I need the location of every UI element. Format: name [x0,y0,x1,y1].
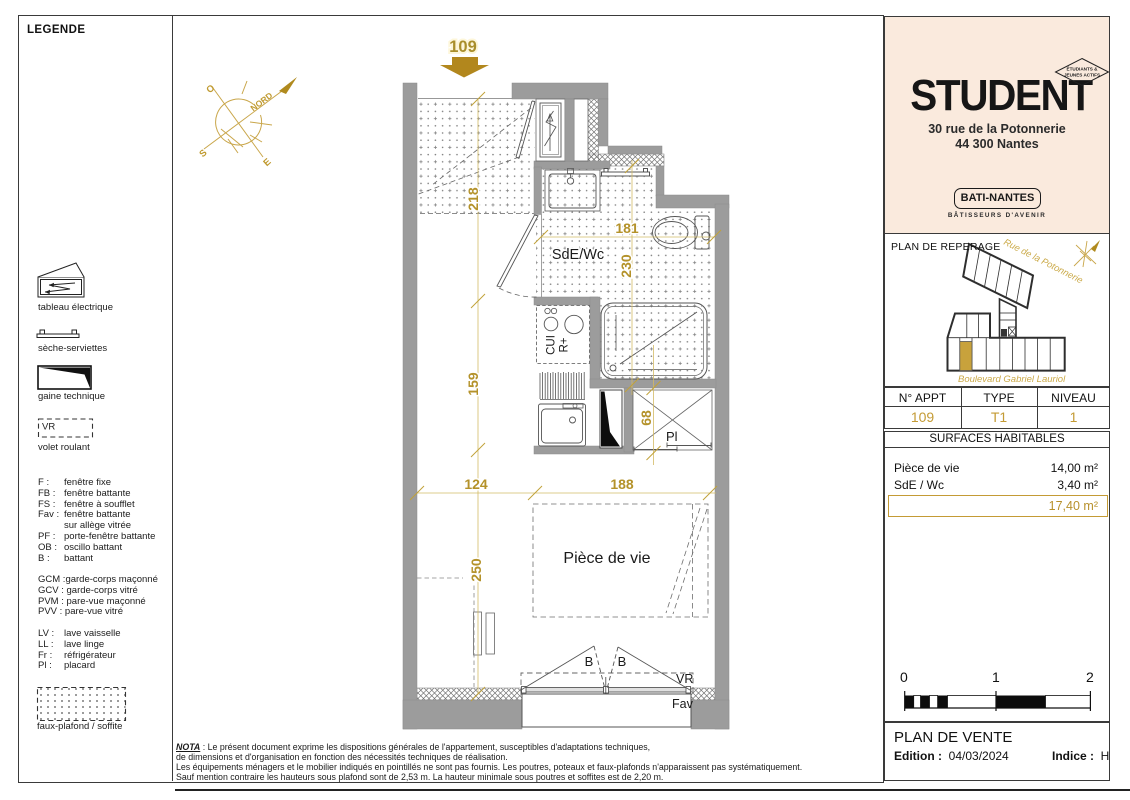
svg-text:CUI: CUI [546,335,558,355]
svg-text:O: O [204,83,217,96]
svg-text:230: 230 [618,254,634,278]
svg-text:159: 159 [465,372,481,396]
svg-text:B: B [585,654,594,669]
svg-text:ÉTUDIANTS &: ÉTUDIANTS & [1067,65,1099,72]
svg-text:JEUNES ACTIFS: JEUNES ACTIFS [1064,73,1100,78]
svg-text:188: 188 [610,476,634,492]
svg-text:181: 181 [615,220,639,236]
svg-text:109: 109 [449,38,477,56]
svg-text:68: 68 [638,410,654,426]
svg-text:124: 124 [464,476,488,492]
svg-text:SdE/Wc: SdE/Wc [552,247,604,263]
svg-text:R+: R+ [559,337,571,352]
svg-text:218: 218 [465,187,481,211]
svg-text:VR: VR [676,672,693,686]
svg-text:E: E [261,156,273,168]
svg-text:250: 250 [468,558,484,582]
svg-text:Pièce de vie: Pièce de vie [563,550,650,567]
svg-text:B: B [618,654,627,669]
svg-text:S: S [197,147,209,159]
svg-text:Pl: Pl [666,429,678,444]
svg-text:Fav: Fav [672,697,694,711]
svg-text:NORD: NORD [248,90,274,113]
